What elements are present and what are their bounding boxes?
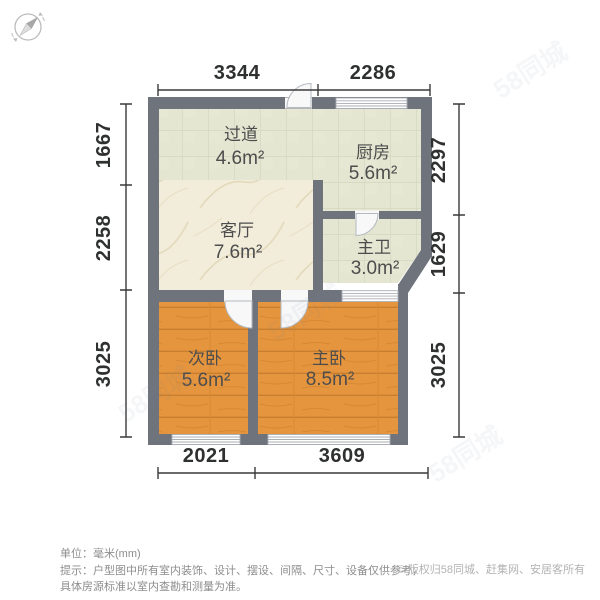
room-area-master-bedroom: 8.5m² [306, 369, 355, 390]
room-name-hallway: 过道 [224, 125, 258, 144]
floor-plan: 过道 4.6m² 厨房 5.6m² 客厅 7.6m² 主卫 3.0m² 次卧 5… [0, 0, 600, 545]
dim-right-2: 1629 [428, 231, 450, 278]
unit-note: 单位：毫米(mm) [60, 546, 423, 563]
disclaimer-line2: 具体房源标准以室内查勘和测量为准。 [60, 579, 423, 596]
disclaimer-line1: 提示：户型图中所有室内装饰、设计、摆设、间隔、尺寸、设备仅供参考， [60, 563, 423, 580]
wall-bedroom-sep-b [252, 290, 281, 302]
room-name-bathroom: 主卫 [357, 238, 391, 257]
dim-right-3: 3025 [428, 342, 450, 389]
room-name-kitchen: 厨房 [356, 143, 390, 162]
room-area-bathroom: 3.0m² [351, 258, 400, 279]
master-bedroom-partition-window [342, 291, 398, 302]
floor-plan-canvas: 过道 4.6m² 厨房 5.6m² 客厅 7.6m² 主卫 3.0m² 次卧 5… [0, 0, 600, 540]
room-name-living: 客厅 [220, 221, 254, 240]
room-name-master-bedroom: 主卧 [312, 349, 346, 368]
dim-bottom-1: 2021 [183, 445, 230, 467]
secondary-bedroom-window [172, 435, 240, 445]
watermark: 58同城 [488, 36, 573, 104]
copyright-notice: © 版权归58同城、赶集网、安居客所有 [397, 561, 585, 577]
room-area-kitchen: 5.6m² [349, 163, 398, 184]
master-bedroom-window [268, 435, 390, 445]
dim-top-2: 2286 [350, 62, 397, 84]
dim-left-2: 2258 [93, 215, 115, 262]
wall-kitchen-bath-left [323, 211, 355, 219]
wall-right-lower [398, 284, 408, 445]
kitchen-window [336, 98, 407, 109]
dim-left-1: 1667 [93, 122, 115, 169]
room-name-second-bedroom: 次卧 [188, 349, 222, 368]
wall-bedroom-sep-a [148, 290, 224, 302]
compass-icon [12, 12, 45, 42]
room-area-living: 7.6m² [214, 242, 263, 263]
room-area-hallway: 4.6m² [216, 148, 265, 169]
dim-left-3: 3025 [93, 341, 115, 388]
wall-kitchen-bath-right [379, 211, 421, 219]
dim-top-1: 3344 [214, 62, 261, 84]
dim-right-1: 2297 [428, 137, 450, 184]
entrance-door [285, 84, 312, 109]
watermark: 58同城 [423, 420, 508, 488]
dim-bottom-2: 3609 [319, 445, 366, 467]
footer-notes: 单位：毫米(mm) 提示：户型图中所有室内装饰、设计、摆设、间隔、尺寸、设备仅供… [60, 546, 423, 596]
